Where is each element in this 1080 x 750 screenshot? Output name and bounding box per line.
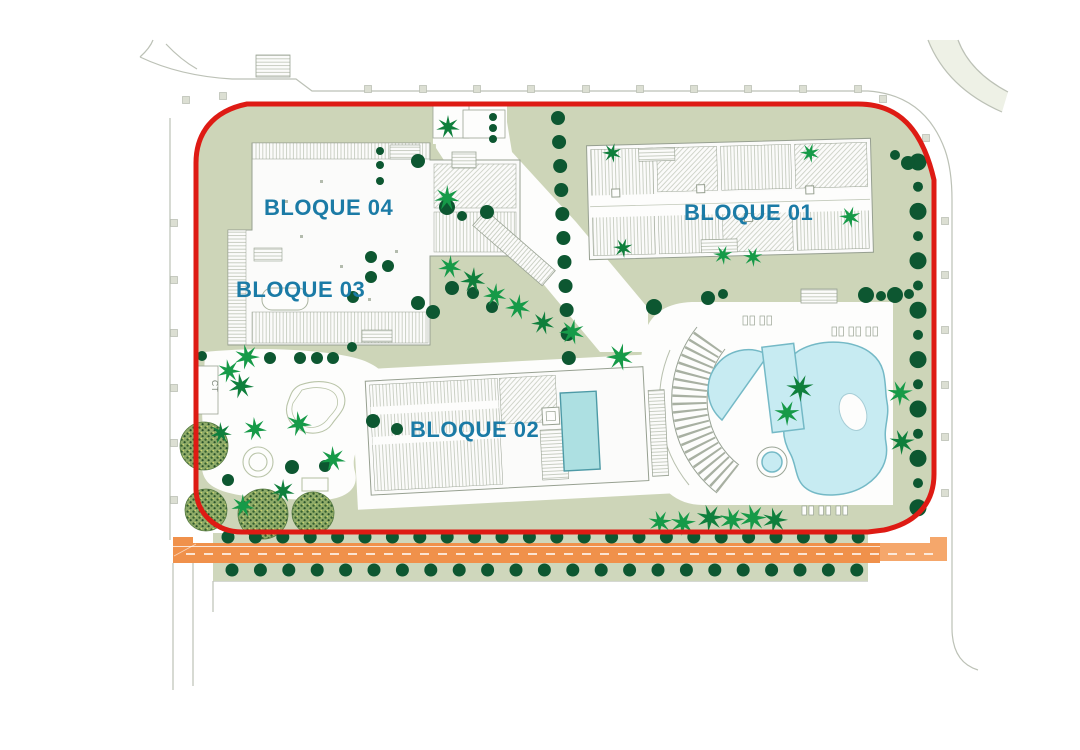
site-plan-drawing: BLOQUE 04 BLOQUE 03 BLOQUE 01 BLOQUE 02 … bbox=[0, 0, 1080, 750]
road-surface-right bbox=[880, 543, 947, 561]
tree-icon bbox=[226, 564, 239, 577]
tree-icon bbox=[555, 207, 569, 221]
sunbed-icon bbox=[826, 506, 831, 515]
paver-square bbox=[942, 218, 949, 225]
tree-icon bbox=[551, 111, 565, 125]
sidewalk-corner-line2 bbox=[140, 40, 153, 57]
canopy-tree-icon bbox=[292, 492, 334, 534]
sunbed-icon bbox=[856, 327, 861, 336]
tree-icon bbox=[737, 564, 750, 577]
tree-icon bbox=[718, 289, 728, 299]
sunbed-icon bbox=[809, 506, 814, 515]
sunbed-icon bbox=[819, 506, 824, 515]
paver-square bbox=[800, 86, 807, 93]
tree-icon bbox=[910, 351, 927, 368]
sunbed-icon bbox=[849, 327, 854, 336]
paver-square bbox=[691, 86, 698, 93]
tree-icon bbox=[453, 564, 466, 577]
tree-icon bbox=[311, 352, 323, 364]
bloque01-label: BLOQUE 01 bbox=[684, 200, 813, 225]
tree-icon bbox=[327, 352, 339, 364]
tree-icon bbox=[901, 156, 915, 170]
tree-icon bbox=[623, 564, 636, 577]
tree-icon bbox=[910, 401, 927, 418]
paver-square bbox=[365, 86, 372, 93]
tree-icon bbox=[553, 159, 567, 173]
sunbed-icon bbox=[836, 506, 841, 515]
paver-square bbox=[942, 490, 949, 497]
tree-icon bbox=[339, 564, 352, 577]
tree-icon bbox=[457, 211, 467, 221]
top-stair-structure bbox=[256, 55, 290, 77]
tree-icon bbox=[426, 305, 440, 319]
tree-icon bbox=[913, 330, 923, 340]
tree-icon bbox=[559, 279, 573, 293]
site-plan: BLOQUE 04 BLOQUE 03 BLOQUE 01 BLOQUE 02 … bbox=[0, 0, 1080, 750]
tree-icon bbox=[480, 205, 494, 219]
sunbed-icon bbox=[767, 316, 772, 325]
tree-icon bbox=[913, 478, 923, 488]
paver-square bbox=[220, 93, 227, 100]
tree-icon bbox=[890, 150, 900, 160]
tree-icon bbox=[347, 342, 357, 352]
tree-icon bbox=[222, 474, 234, 486]
ct-label: CT bbox=[210, 380, 220, 392]
paver-square bbox=[583, 86, 590, 93]
tree-icon bbox=[904, 289, 914, 299]
tree-icon bbox=[701, 291, 715, 305]
bloque01-building bbox=[587, 138, 874, 259]
tree-icon bbox=[765, 564, 778, 577]
tree-icon bbox=[285, 460, 299, 474]
bloque02-label: BLOQUE 02 bbox=[410, 417, 539, 442]
sunbed-icon bbox=[832, 327, 837, 336]
paver-square bbox=[420, 86, 427, 93]
sunbed-icon bbox=[750, 316, 755, 325]
tree-icon bbox=[411, 296, 425, 310]
tree-icon bbox=[365, 251, 377, 263]
tree-icon bbox=[913, 429, 923, 439]
play-circle-outer bbox=[243, 447, 273, 477]
tree-icon bbox=[552, 135, 566, 149]
sidewalk-corner-line bbox=[166, 44, 197, 69]
sunbed-icon bbox=[866, 327, 871, 336]
tree-icon bbox=[913, 281, 923, 291]
sunbed-icon bbox=[843, 506, 848, 515]
tree-icon bbox=[489, 113, 497, 121]
tree-icon bbox=[254, 564, 267, 577]
tree-icon bbox=[562, 351, 576, 365]
tree-icon bbox=[481, 564, 494, 577]
bench-pad bbox=[302, 478, 328, 491]
entry-pavilion2 bbox=[463, 110, 505, 138]
tree-icon bbox=[887, 287, 903, 303]
tree-icon bbox=[560, 303, 574, 317]
paver-square bbox=[171, 330, 178, 337]
tree-icon bbox=[489, 135, 497, 143]
walkway-stairs bbox=[452, 152, 476, 168]
tree-icon bbox=[566, 564, 579, 577]
paver-square bbox=[183, 97, 190, 104]
paver-square bbox=[637, 86, 644, 93]
tree-icon bbox=[652, 564, 665, 577]
tree-icon bbox=[876, 291, 886, 301]
tree-icon bbox=[376, 147, 384, 155]
tree-icon bbox=[538, 564, 551, 577]
tree-icon bbox=[376, 161, 384, 169]
sunbed-icon bbox=[873, 327, 878, 336]
tree-icon bbox=[264, 352, 276, 364]
paver-square bbox=[528, 86, 535, 93]
tree-icon bbox=[557, 255, 571, 269]
tree-icon bbox=[556, 231, 570, 245]
tree-icon bbox=[366, 414, 380, 428]
paver-square bbox=[171, 440, 178, 447]
rooftop-pool bbox=[560, 391, 600, 471]
tree-icon bbox=[595, 564, 608, 577]
tree-icon bbox=[424, 564, 437, 577]
paver-square bbox=[171, 220, 178, 227]
tree-icon bbox=[910, 252, 927, 269]
tree-icon bbox=[910, 450, 927, 467]
paver-square bbox=[942, 382, 949, 389]
sunbed-icon bbox=[743, 316, 748, 325]
paver-square bbox=[923, 135, 930, 142]
tree-icon bbox=[794, 564, 807, 577]
tree-icon bbox=[467, 287, 479, 299]
spa-pool bbox=[762, 452, 782, 472]
tree-icon bbox=[486, 301, 498, 313]
tree-icon bbox=[910, 302, 927, 319]
tree-icon bbox=[294, 352, 306, 364]
tree-icon bbox=[510, 564, 523, 577]
paver-square bbox=[171, 385, 178, 392]
tree-icon bbox=[646, 299, 662, 315]
paver-square bbox=[171, 497, 178, 504]
tree-icon bbox=[708, 564, 721, 577]
bloque03-label: BLOQUE 03 bbox=[236, 277, 365, 302]
pergola bbox=[801, 289, 837, 303]
corner-road-band bbox=[928, 40, 1008, 112]
tree-icon bbox=[311, 564, 324, 577]
tree-icon bbox=[913, 231, 923, 241]
paver-square bbox=[880, 96, 887, 103]
paver-square bbox=[474, 86, 481, 93]
tree-icon bbox=[376, 177, 384, 185]
tree-icon bbox=[365, 271, 377, 283]
tree-icon bbox=[391, 423, 403, 435]
tree-icon bbox=[411, 154, 425, 168]
tree-icon bbox=[913, 379, 923, 389]
tree-icon bbox=[850, 564, 863, 577]
paver-square bbox=[171, 277, 178, 284]
paver-square bbox=[942, 434, 949, 441]
tree-icon bbox=[489, 124, 497, 132]
tree-icon bbox=[554, 183, 568, 197]
paver-square bbox=[942, 272, 949, 279]
tree-icon bbox=[445, 281, 459, 295]
bloque04-label: BLOQUE 04 bbox=[264, 195, 393, 220]
sunbed-icon bbox=[760, 316, 765, 325]
tree-icon bbox=[282, 564, 295, 577]
spa-feature bbox=[542, 407, 560, 425]
tree-icon bbox=[680, 564, 693, 577]
sunbed-icon bbox=[839, 327, 844, 336]
tree-icon bbox=[910, 203, 927, 220]
tree-icon bbox=[822, 564, 835, 577]
tree-icon bbox=[382, 260, 394, 272]
tree-icon bbox=[368, 564, 381, 577]
tree-icon bbox=[913, 182, 923, 192]
paver-square bbox=[855, 86, 862, 93]
paver-square bbox=[942, 327, 949, 334]
tree-icon bbox=[858, 287, 874, 303]
sunbed-icon bbox=[802, 506, 807, 515]
tree-icon bbox=[396, 564, 409, 577]
paver-square bbox=[745, 86, 752, 93]
